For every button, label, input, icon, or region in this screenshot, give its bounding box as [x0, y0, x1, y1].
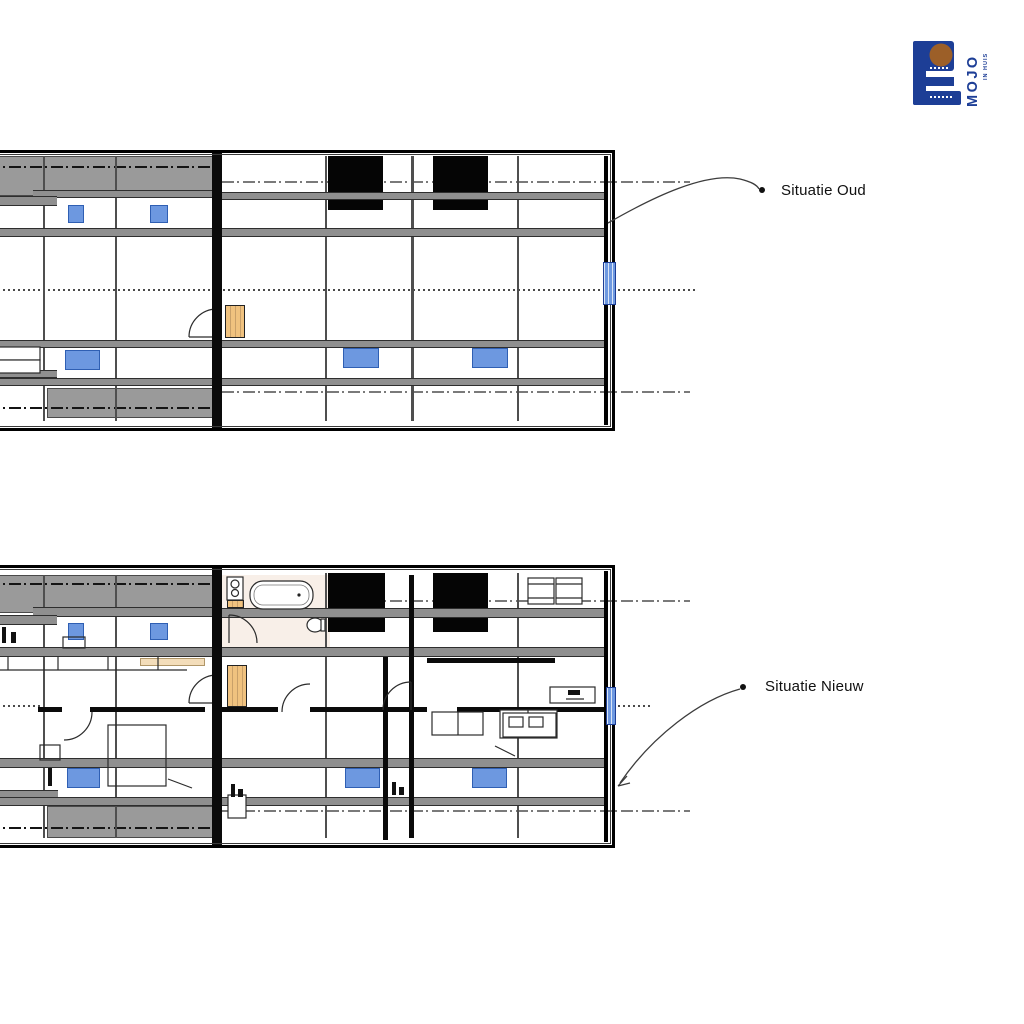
logo-brand-text: MOJO [965, 43, 981, 107]
logo-tagline-text: IN HUIS [983, 46, 989, 80]
label-situatie-nieuw: Situatie Nieuw [765, 678, 864, 695]
leader-dot-old [759, 187, 765, 193]
leader-dot-new [740, 684, 746, 690]
mojo-logo-mark [913, 41, 961, 105]
annotation-leaders [0, 0, 1024, 1024]
mojo-logo: MOJO IN HUIS [913, 40, 1003, 110]
leader-old [608, 178, 759, 223]
logo-circle [930, 44, 953, 67]
leader-new [620, 689, 740, 783]
label-situatie-oud: Situatie Oud [781, 182, 866, 199]
